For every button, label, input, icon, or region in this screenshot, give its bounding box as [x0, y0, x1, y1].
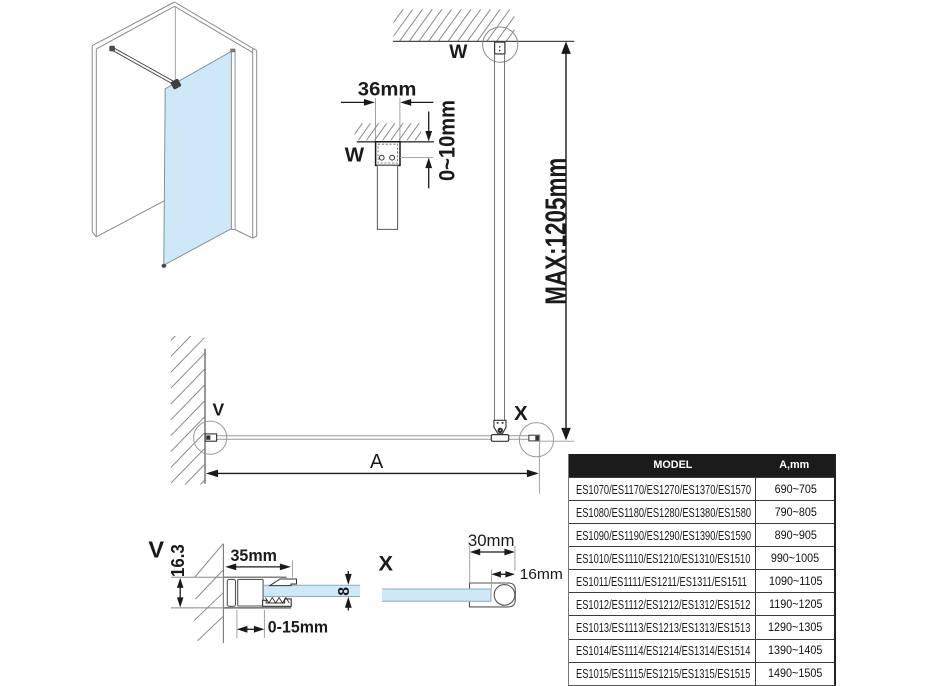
svg-text:36mm: 36mm	[358, 78, 417, 100]
svg-text:X: X	[514, 402, 528, 425]
svg-text:0~10mm: 0~10mm	[434, 100, 459, 181]
svg-text:35mm: 35mm	[231, 547, 277, 565]
svg-text:16.3: 16.3	[167, 544, 188, 577]
svg-text:V: V	[213, 400, 225, 420]
svg-text:8: 8	[336, 587, 353, 596]
svg-text:MAX:1205mm: MAX:1205mm	[540, 158, 572, 305]
svg-text:16mm: 16mm	[520, 566, 563, 583]
svg-text:W: W	[449, 42, 468, 63]
svg-text:V: V	[148, 537, 164, 563]
svg-text:A: A	[370, 451, 384, 473]
svg-text:30mm: 30mm	[468, 531, 515, 550]
svg-text:W: W	[345, 144, 365, 167]
svg-text:0-15mm: 0-15mm	[268, 618, 328, 637]
svg-text:X: X	[379, 551, 394, 576]
